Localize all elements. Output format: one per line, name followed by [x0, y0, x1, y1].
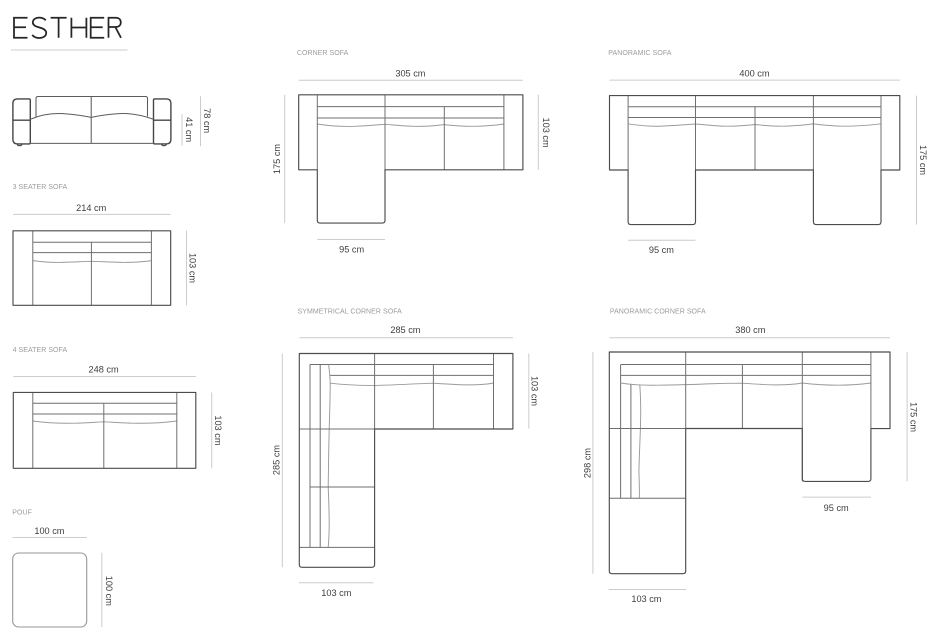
svg-text:298 cm: 298 cm	[582, 448, 592, 478]
svg-text:175 cm: 175 cm	[918, 145, 928, 175]
svg-text:103 cm: 103 cm	[321, 588, 351, 598]
svg-text:PANORAMIC CORNER SOFA: PANORAMIC CORNER SOFA	[610, 308, 706, 315]
svg-text:95 cm: 95 cm	[824, 503, 849, 513]
svg-text:175 cm: 175 cm	[272, 144, 282, 174]
svg-text:285 cm: 285 cm	[271, 445, 281, 475]
svg-text:214 cm: 214 cm	[76, 203, 106, 213]
svg-text:100 cm: 100 cm	[34, 526, 64, 536]
svg-text:103 cm: 103 cm	[541, 118, 551, 148]
svg-text:95 cm: 95 cm	[649, 245, 674, 255]
svg-text:PANORAMIC SOFA: PANORAMIC SOFA	[608, 50, 671, 57]
svg-text:103 cm: 103 cm	[631, 594, 661, 604]
svg-text:78 cm: 78 cm	[202, 108, 212, 133]
svg-text:95 cm: 95 cm	[339, 244, 364, 254]
svg-text:103 cm: 103 cm	[187, 253, 197, 283]
svg-text:4 SEATER SOFA: 4 SEATER SOFA	[13, 347, 68, 354]
svg-text:175 cm: 175 cm	[908, 402, 918, 432]
svg-text:CORNER SOFA: CORNER SOFA	[297, 50, 349, 57]
svg-text:380 cm: 380 cm	[735, 325, 765, 335]
svg-text:POUF: POUF	[12, 509, 32, 516]
svg-text:SYMMETRICAL CORNER SOFA: SYMMETRICAL CORNER SOFA	[298, 308, 403, 315]
svg-text:248 cm: 248 cm	[89, 364, 119, 374]
svg-text:41 cm: 41 cm	[184, 117, 194, 142]
svg-text:3 SEATER SOFA: 3 SEATER SOFA	[13, 184, 68, 191]
svg-text:285 cm: 285 cm	[390, 325, 420, 335]
svg-text:103 cm: 103 cm	[530, 376, 540, 406]
svg-text:305 cm: 305 cm	[395, 69, 425, 79]
svg-text:100 cm: 100 cm	[104, 576, 114, 606]
svg-text:400 cm: 400 cm	[739, 69, 769, 79]
svg-text:103 cm: 103 cm	[213, 415, 223, 445]
